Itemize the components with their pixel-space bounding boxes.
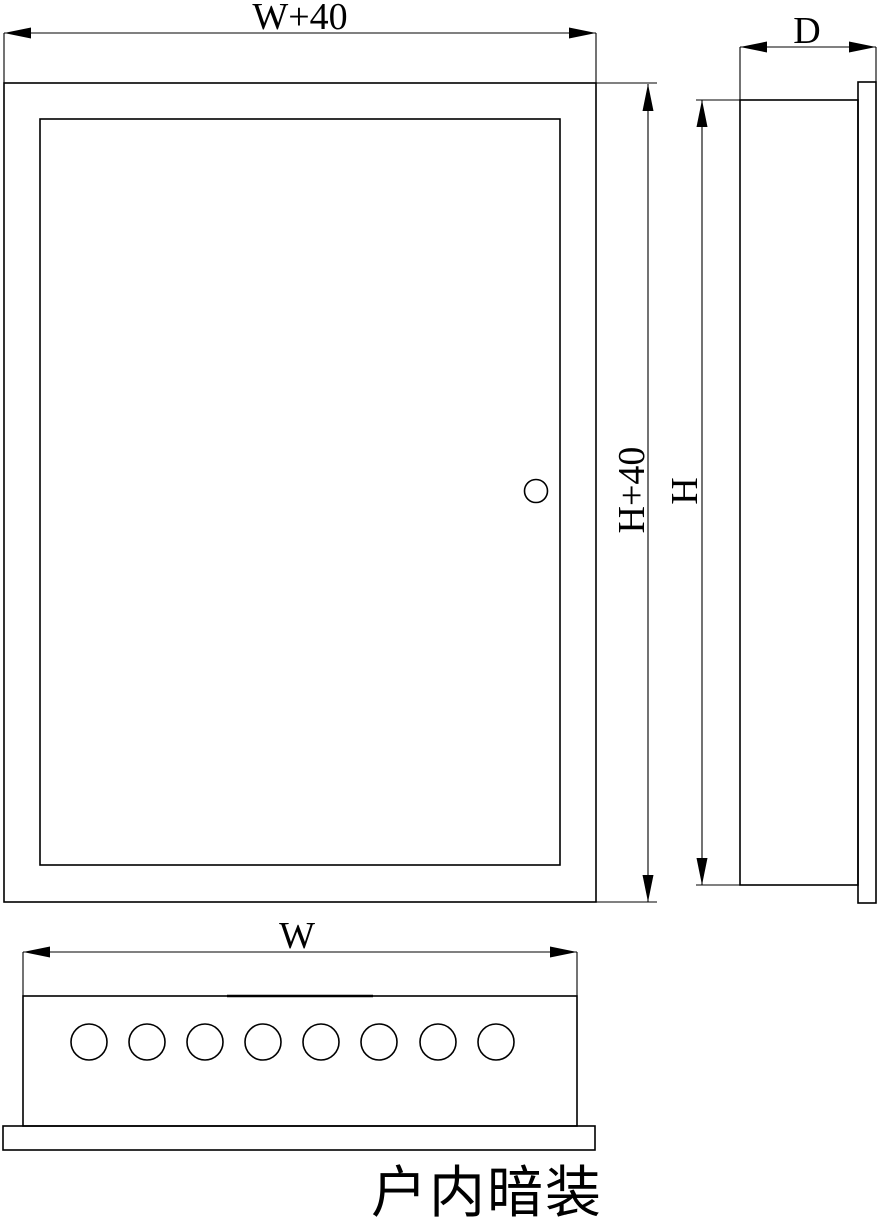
front-door-panel — [40, 119, 560, 865]
arrow-left-icon — [4, 28, 31, 39]
technical-drawing-sheet: W+40 H+40 — [0, 0, 879, 1224]
side-body — [740, 100, 858, 885]
knockout-holes — [71, 1024, 514, 1060]
dimension-label-d: D — [793, 10, 820, 52]
front-view: W+40 H+40 — [4, 0, 657, 902]
knockout-hole — [303, 1024, 339, 1060]
arrow-down-icon — [697, 858, 708, 885]
knockout-hole — [245, 1024, 281, 1060]
bottom-flange-plate — [3, 1126, 595, 1150]
arrow-left-icon — [740, 42, 767, 53]
arrow-right-icon — [569, 28, 596, 39]
dimension-label-w-plus-40: W+40 — [252, 0, 347, 38]
knockout-hole — [361, 1024, 397, 1060]
arrow-left-icon — [23, 947, 50, 958]
knockout-hole — [129, 1024, 165, 1060]
drawing-title: 户内暗装 — [371, 1163, 603, 1224]
enclosure-drawing: W+40 H+40 — [0, 0, 879, 1224]
side-front-flange — [858, 82, 876, 903]
arrow-up-icon — [643, 84, 654, 111]
dimension-w: W — [23, 915, 577, 996]
dimension-d: D — [740, 10, 876, 100]
bottom-view: W — [3, 915, 595, 1150]
knockout-hole — [478, 1024, 514, 1060]
arrow-up-icon — [697, 100, 708, 127]
dimension-label-h-plus-40: H+40 — [611, 447, 653, 534]
bottom-body — [23, 996, 577, 1126]
arrow-down-icon — [643, 875, 654, 902]
dimension-w-plus-40: W+40 — [4, 0, 596, 83]
dimension-h-plus-40: H+40 — [596, 83, 657, 902]
dimension-label-h: H — [664, 477, 706, 504]
arrow-right-icon — [849, 42, 876, 53]
door-lock-knob — [525, 480, 548, 503]
dimension-label-w: W — [279, 915, 315, 957]
side-view: D H — [664, 10, 876, 903]
knockout-hole — [420, 1024, 456, 1060]
front-outer-body — [4, 83, 596, 902]
dimension-h: H — [664, 100, 740, 885]
arrow-right-icon — [550, 947, 577, 958]
knockout-hole — [71, 1024, 107, 1060]
knockout-hole — [187, 1024, 223, 1060]
